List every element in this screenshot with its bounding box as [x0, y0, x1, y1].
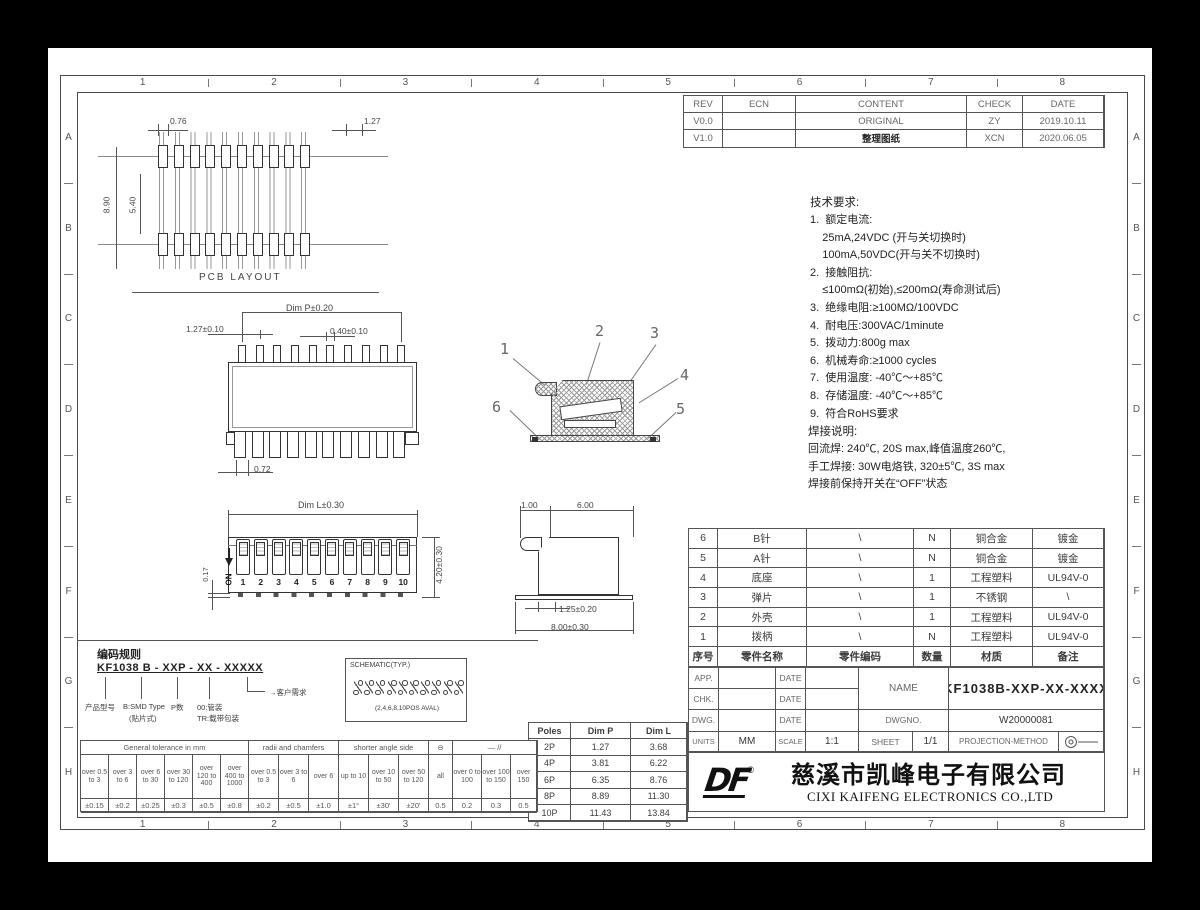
tolerance-range-cell: over 400 to 1000	[221, 755, 249, 799]
contact-detail	[564, 420, 616, 428]
zone-row-label: F	[1128, 546, 1145, 637]
technical-requirement-line: 6. 机械寿命:≥1000 cycles	[810, 353, 1120, 371]
zone-column-label: 2	[208, 817, 339, 830]
bom-cell: \	[1033, 588, 1104, 608]
bom-cell: 1	[914, 608, 951, 628]
dim-l: Dim L±0.30	[298, 500, 344, 510]
zone-row-label: G	[1128, 637, 1145, 728]
coding-label-pack1: 00:管装	[197, 702, 222, 713]
tolerance-range-cell: over 50 to 120	[399, 755, 429, 799]
tolerance-value-cell: ±0.25	[137, 799, 165, 813]
revision-cell: ZY	[967, 113, 1023, 130]
callout-number: 5	[676, 400, 685, 418]
date-label: DATE	[776, 689, 806, 710]
bom-cell: 弹片	[718, 588, 807, 608]
pin	[305, 432, 317, 458]
dim-pin-width: 0.40±0.10	[330, 326, 368, 336]
switch-symbol-icon	[455, 681, 463, 694]
part-name: KF1038B-XXP-XX-XXXX	[949, 668, 1104, 710]
zone-row-label: H	[1128, 727, 1145, 818]
revision-cell: V1.0	[684, 130, 723, 147]
tolerance-range-cell: over 30 to 120	[165, 755, 193, 799]
revision-header-cell: DATE	[1023, 96, 1104, 113]
switch-knob	[399, 542, 408, 556]
switch-symbol-icon	[376, 681, 384, 694]
pin	[362, 345, 370, 362]
switch-symbol-icon	[432, 681, 440, 694]
tolerance-range-cell: over 10 to 50	[369, 755, 399, 799]
poles-cell: 13.84	[631, 805, 687, 821]
company-block: DF® 慈溪市凯峰电子有限公司 CIXI KAIFENG ELECTRONICS…	[688, 752, 1105, 812]
poles-header-cell: Dim P	[571, 723, 631, 739]
pin	[291, 345, 299, 362]
pin	[287, 432, 299, 458]
revision-cell: V0.0	[684, 113, 723, 130]
technical-requirement-line: 100mA,50VDC(开与关不切换时)	[810, 247, 1120, 265]
tolerance-range-cell: over 6	[309, 755, 339, 799]
technical-requirement-line: 25mA,24VDC (开与关切换时)	[810, 230, 1120, 248]
switch-slider	[361, 539, 375, 575]
switch-number: 7	[343, 577, 357, 587]
flatness-symbol-icon: ⊖	[429, 741, 453, 755]
pin	[273, 345, 281, 362]
switch-symbol-icon	[354, 681, 362, 694]
toggle-tab	[520, 537, 542, 551]
foot-left	[532, 437, 538, 442]
sheet-value: 1/1	[913, 732, 949, 753]
date-value	[806, 710, 859, 731]
pcb-pad	[253, 233, 263, 256]
company-logo: DF®	[705, 765, 754, 798]
side-view: 1.00 6.00 1.25±0.20 8.00±0.30	[503, 498, 668, 648]
tolerance-range-cell: all	[429, 755, 453, 799]
tolerance-range-cell: over 6 to 30	[137, 755, 165, 799]
switch-cell: 8	[361, 539, 375, 587]
switch-cell: 3	[272, 539, 286, 587]
foot-right	[650, 437, 656, 442]
pin	[376, 432, 388, 458]
switch-symbol-icon	[421, 681, 429, 694]
revision-cell: 2020.06.05	[1023, 130, 1104, 147]
zone-column-label: 5	[603, 75, 734, 91]
tolerance-value-cell: ±0.8	[221, 799, 249, 813]
switch-knob	[327, 542, 336, 556]
pin	[326, 345, 334, 362]
tolerance-value-cell: ±30'	[369, 799, 399, 813]
pcb-pad	[284, 233, 294, 256]
coding-label-poles: P数	[171, 702, 184, 713]
zone-row-label: B	[1128, 183, 1145, 274]
schematic-caption: (2,4,6,8,10POS AVAL)	[346, 705, 468, 712]
dim-total: 8.00±0.30	[551, 622, 589, 632]
pin	[256, 345, 264, 362]
dim-pin-pitch: 1.27±0.10	[186, 324, 224, 334]
technical-requirement-line: 5. 拨动力:800g max	[810, 335, 1120, 353]
leader-line	[639, 378, 679, 403]
bom-cell: 6	[689, 529, 718, 549]
technical-requirement-line: 2. 接触阻抗:	[810, 265, 1120, 283]
zone-column-label: 1	[77, 75, 208, 91]
date-value	[806, 668, 859, 689]
bom-cell: \	[807, 549, 914, 569]
zone-row-label: C	[60, 274, 77, 365]
coding-title: 编码规则	[97, 646, 141, 662]
dim-foot: 1.25±0.20	[559, 604, 597, 614]
bom-header-cell: 备注	[1033, 647, 1104, 667]
poles-cell: 11.30	[631, 789, 687, 805]
view-separator	[78, 640, 538, 641]
drawn-value	[719, 710, 776, 731]
bom-cell: 工程塑料	[951, 627, 1033, 647]
zone-row-label: D	[1128, 364, 1145, 455]
bom-cell: 不锈钢	[951, 588, 1033, 608]
poles-cell: 11.43	[571, 805, 631, 821]
switch-number: 9	[378, 577, 392, 587]
straightness-parallel-icon: — //	[453, 741, 537, 755]
zone-row-label: F	[60, 546, 77, 637]
body-inner-line	[232, 366, 413, 428]
technical-requirement-line: 1. 额定电流:	[810, 212, 1120, 230]
drawing-sheet: 12345678 12345678 ABCDEFGH ABCDEFGH REVE…	[48, 48, 1152, 862]
logo-df-icon: DF	[703, 765, 750, 798]
zone-row-label: B	[60, 183, 77, 274]
date-label: DATE	[776, 668, 806, 689]
switch-cell: 7	[343, 539, 357, 587]
zone-row-label: E	[1128, 455, 1145, 546]
tolerance-value-cell: 0.2	[453, 799, 482, 813]
bom-table: 6 B针 \ N 铜合金 镀金 5 A针 \ N 铜合金 镀金 4 底座 \ 1…	[688, 528, 1105, 667]
pcb-pad	[205, 233, 215, 256]
pcb-pad	[284, 145, 294, 168]
tolerance-group-header: radii and chamfers	[249, 741, 339, 755]
bom-cell: \	[807, 588, 914, 608]
zone-row-label: A	[60, 92, 77, 183]
switch-number: 10	[396, 577, 410, 587]
on-arrow-icon	[225, 558, 233, 566]
switch-slider	[289, 539, 303, 575]
dim-inner: 5.40	[127, 197, 137, 214]
bom-cell: 工程塑料	[951, 568, 1033, 588]
switch-knob	[381, 542, 390, 556]
tolerance-range-cell: over 0.5 to 3	[249, 755, 279, 799]
zone-row-label: G	[60, 637, 77, 728]
bom-cell: \	[807, 529, 914, 549]
bom-cell: 外壳	[718, 608, 807, 628]
pcb-pad	[300, 145, 310, 168]
soldering-notes-title: 焊接说明:	[808, 423, 1118, 441]
approved-label: APP.	[689, 668, 719, 689]
pin	[322, 432, 334, 458]
zone-column-label: 4	[471, 75, 602, 91]
switch-symbol-icon	[444, 681, 452, 694]
bom-cell: N	[914, 627, 951, 647]
switch-knob	[256, 542, 265, 556]
pcb-pad	[221, 233, 231, 256]
callout-number: 4	[680, 366, 689, 384]
switch-number: 1	[236, 577, 250, 587]
switch-slider	[325, 539, 339, 575]
tolerance-range-cell: over 150	[511, 755, 537, 799]
switch-number: 4	[289, 577, 303, 587]
tolerance-value-cell: ±20'	[399, 799, 429, 813]
bom-cell: UL94V-0	[1033, 608, 1104, 628]
tolerance-value-cell: ±0.2	[109, 799, 137, 813]
on-label: ON	[225, 568, 234, 586]
switch-slider	[378, 539, 392, 575]
switch-knob	[345, 542, 354, 556]
drawn-label: DWG.	[689, 710, 719, 731]
dim-height: 4.20±0.30	[434, 546, 444, 584]
zone-row-label: A	[1128, 92, 1145, 183]
poles-header-cell: Poles	[529, 723, 571, 739]
switch-cell: 9	[378, 539, 392, 587]
revision-cell: XCN	[967, 130, 1023, 147]
tolerance-group-header: General tolerance in mm	[81, 741, 249, 755]
bom-cell: 底座	[718, 568, 807, 588]
pcb-pad	[269, 233, 279, 256]
bom-cell: 2	[689, 608, 718, 628]
zone-row-label: H	[60, 727, 77, 818]
poles-table: PolesDim PDim L 2P 1.27 3.68 4P 3.81 6.2…	[528, 722, 688, 822]
bom-cell: A针	[718, 549, 807, 569]
technical-requirement-line: ≤100mΩ(初始),≤200mΩ(寿命测试后)	[810, 282, 1120, 300]
bom-cell: N	[914, 549, 951, 569]
pin	[252, 432, 264, 458]
switch-number: 2	[254, 577, 268, 587]
switch-knob	[239, 542, 248, 556]
coding-rules: 编码规则 KF1038 B - XXP - XX - XXXXX 产品型号 B:…	[85, 644, 345, 736]
technical-requirement-line: 8. 存储温度: -40℃～+85℃	[810, 388, 1120, 406]
zone-column-label: 7	[865, 75, 996, 91]
pin	[380, 345, 388, 362]
leader-line	[630, 344, 656, 381]
dim-outer: 8.90	[101, 197, 111, 214]
bom-cell: 铜合金	[951, 549, 1033, 569]
bom-header-cell: 零件名称	[718, 647, 807, 667]
pin	[309, 345, 317, 362]
dwgno-label: DWGNO.	[859, 710, 949, 731]
tolerance-group-header: shorter angle side	[339, 741, 429, 755]
revision-cell: 整理图纸	[796, 130, 967, 147]
dim-standoff: 0.17	[201, 567, 210, 582]
soldering-note-line: 焊接前保持开关在“OFF”状态	[808, 476, 1118, 494]
switch-symbol-icon	[410, 681, 418, 694]
pcb-pad	[237, 145, 247, 168]
bom-cell: B针	[718, 529, 807, 549]
tolerance-range-cell: over 3 to 6	[109, 755, 137, 799]
switch-slider	[254, 539, 268, 575]
dwgno-value: W20000081	[949, 710, 1104, 731]
flange-section	[530, 435, 660, 442]
switch-slider	[343, 539, 357, 575]
bom-cell: \	[807, 608, 914, 628]
tolerance-range-cell: up to 10	[339, 755, 369, 799]
revision-cell: ORIGINAL	[796, 113, 967, 130]
callout-number: 6	[492, 398, 501, 416]
bom-cell: 1	[914, 568, 951, 588]
bom-cell: 5	[689, 549, 718, 569]
bom-header-cell: 数量	[914, 647, 951, 667]
bom-cell: 1	[914, 588, 951, 608]
technical-requirement-line: 9. 符合RoHS要求	[810, 406, 1120, 424]
pcb-layout-label: PCB LAYOUT	[199, 272, 282, 283]
zone-column-label: 2	[208, 75, 339, 91]
tolerance-value-cell: ±0.2	[249, 799, 279, 813]
revision-table: REVECNCONTENTCHECKDATE V0.0 ORIGINAL ZY …	[683, 95, 1105, 148]
bom-cell: 铜合金	[951, 529, 1033, 549]
projection-label: PROJECTION-METHOD	[949, 732, 1059, 753]
pcb-pad	[269, 145, 279, 168]
switch-slider	[307, 539, 321, 575]
zone-rows-left: ABCDEFGH	[60, 92, 77, 818]
switch-cell: 5	[307, 539, 321, 587]
date-label: DATE	[776, 710, 806, 731]
bom-cell: UL94V-0	[1033, 627, 1104, 647]
switch-number: 5	[307, 577, 321, 587]
pin	[344, 345, 352, 362]
tolerance-value-cell: ±1°	[339, 799, 369, 813]
pcb-pad	[190, 233, 200, 256]
switch-symbol-icon	[399, 681, 407, 694]
bom-cell: 4	[689, 568, 718, 588]
units-value: MM	[719, 732, 776, 753]
projection-method-icon	[1062, 735, 1100, 749]
switch-knob	[310, 542, 319, 556]
bom-cell: 镀金	[1033, 529, 1104, 549]
bom-cell: 3	[689, 588, 718, 608]
projection-symbol	[1059, 732, 1104, 753]
technical-requirements: 技术要求: 1. 额定电流: 25mA,24VDC (开与关切换时) 100mA…	[810, 194, 1120, 423]
zone-column-label: 6	[734, 75, 865, 91]
bom-header-cell: 材质	[951, 647, 1033, 667]
tolerance-value-cell: ±1.0	[309, 799, 339, 813]
tolerance-range-cell: over 0.5 to 3	[81, 755, 109, 799]
pcb-pad	[221, 145, 231, 168]
switch-body-side	[538, 537, 619, 595]
title-block: APP. DATE NAME KF1038B-XXP-XX-XXXX CHK. …	[688, 667, 1105, 752]
pin	[358, 432, 370, 458]
switch-cell: 2	[254, 539, 268, 587]
bottom-pins	[234, 432, 411, 458]
top-view: Dim P±0.20 1.27±0.10 0.40±0.10 0.72	[178, 303, 448, 483]
zone-row-label: C	[1128, 274, 1145, 365]
soldering-notes: 焊接说明: 回流焊: 240℃, 20S max,峰值温度260℃,手工焊接: …	[808, 423, 1118, 494]
tolerance-value-cell: 0.3	[482, 799, 511, 813]
revision-header-cell: REV	[684, 96, 723, 113]
top-pins	[238, 345, 415, 362]
name-label: NAME	[859, 668, 949, 710]
soldering-note-line: 回流焊: 240℃, 20S max,峰值温度260℃,	[808, 441, 1118, 459]
pin	[238, 345, 246, 362]
switch-cell: 6	[325, 539, 339, 587]
zone-column-label: 1	[77, 817, 208, 830]
dim-pitch: 1.27	[364, 116, 381, 126]
schematic-box: SCHEMATIC(TYP.) (2,4,6,8,10POS AVAL)	[345, 658, 467, 722]
poles-cell: 6.22	[631, 756, 687, 772]
technical-requirement-line: 7. 使用温度: -40℃～+85℃	[810, 370, 1120, 388]
scale-label: SCALE	[776, 732, 806, 753]
pin	[397, 345, 405, 362]
bom-cell: \	[807, 568, 914, 588]
schematic-title: SCHEMATIC(TYP.)	[350, 662, 410, 669]
pcb-pad	[237, 233, 247, 256]
coding-label-type2: (贴片式)	[129, 713, 157, 724]
coding-label-pack2: TR:载带包装	[197, 713, 239, 724]
technical-requirement-line: 3. 绝缘电阻:≥100MΩ/100VDC	[810, 300, 1120, 318]
zone-rows-right: ABCDEFGH	[1128, 92, 1145, 818]
bom-header-cell: 零件编码	[807, 647, 914, 667]
bom-cell: 镀金	[1033, 549, 1104, 569]
tolerance-value-cell: 0.5	[429, 799, 453, 813]
switch-knob	[292, 542, 301, 556]
revision-header-cell: CHECK	[967, 96, 1023, 113]
zone-row-label: E	[60, 455, 77, 546]
company-name-cn: 慈溪市凯峰电子有限公司	[791, 755, 1066, 790]
soldering-note-line: 手工焊接: 30W电烙铁, 320±5℃, 3S max	[808, 459, 1118, 477]
zone-column-label: 8	[997, 817, 1128, 830]
coding-label-product: 产品型号	[85, 702, 115, 713]
coding-label-type: B:SMD Type	[123, 702, 165, 711]
revision-header-cell: ECN	[723, 96, 796, 113]
pcb-pad	[300, 233, 310, 256]
checked-value	[719, 689, 776, 710]
pcb-pad	[174, 145, 184, 168]
bom-cell: UL94V-0	[1033, 568, 1104, 588]
tolerance-value-cell: ±0.15	[81, 799, 109, 813]
switch-knob	[274, 542, 283, 556]
switch-slider	[272, 539, 286, 575]
pcb-pad	[158, 233, 168, 256]
callout-number: 3	[650, 324, 659, 342]
pcb-pad	[158, 145, 168, 168]
switch-row: 1 2 3 4 5 6 7 8	[236, 539, 414, 587]
dim-pad-width: 0.76	[170, 116, 187, 126]
pcb-pad-row-bottom	[158, 233, 316, 256]
pcb-pad	[253, 145, 263, 168]
units-label: UNITS	[689, 732, 719, 753]
approved-value	[719, 668, 776, 689]
tolerance-range-cell: over 0 to 100	[453, 755, 482, 799]
switch-number: 3	[272, 577, 286, 587]
coding-formula: KF1038 B - XXP - XX - XXXXX	[97, 662, 263, 674]
zone-column-label: 3	[340, 817, 471, 830]
dim-foot-width: 0.72	[254, 464, 271, 474]
tolerance-range-cell: over 120 to 400	[193, 755, 221, 799]
dim-tab: 1.00	[521, 500, 538, 510]
poles-cell: 8.76	[631, 772, 687, 788]
revision-header-cell: CONTENT	[796, 96, 967, 113]
zone-columns-top: 12345678	[77, 75, 1128, 91]
feet-ticks	[238, 593, 416, 597]
bom-cell: \	[807, 627, 914, 647]
checked-label: CHK.	[689, 689, 719, 710]
poles-header-cell: Dim L	[631, 723, 687, 739]
revision-cell	[723, 113, 796, 130]
pin	[234, 432, 246, 458]
leader-line	[586, 342, 601, 384]
revision-cell	[723, 130, 796, 147]
tolerance-value-cell: ±0.3	[165, 799, 193, 813]
scale-value: 1:1	[806, 732, 859, 753]
poles-cell: 3.81	[571, 756, 631, 772]
switch-symbol-icon	[365, 681, 373, 694]
sheet-label: SHEET	[859, 732, 913, 753]
front-view: Dim L±0.30 1 2 3 4 5 6	[198, 498, 468, 613]
pcb-layout-view: 8.90 5.40 0.76 1.27 PCB LAYOUT	[104, 112, 404, 292]
zone-row-label: D	[60, 364, 77, 455]
technical-requirement-line: 4. 耐电压:300VAC/1minute	[810, 318, 1120, 336]
zone-column-label: 8	[997, 75, 1128, 91]
